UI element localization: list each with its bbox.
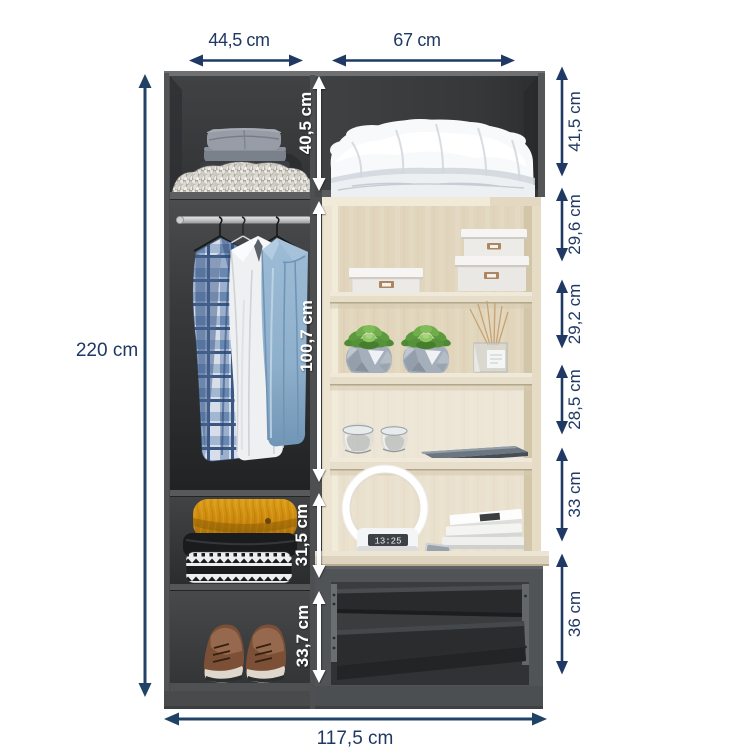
svg-text:44,5 cm: 44,5 cm (208, 30, 269, 50)
svg-text:33 cm: 33 cm (565, 471, 584, 517)
svg-text:41,5 cm: 41,5 cm (565, 91, 584, 151)
svg-text:29,2 cm: 29,2 cm (565, 284, 584, 344)
svg-text:28,5 cm: 28,5 cm (565, 369, 584, 429)
svg-text:40,5 cm: 40,5 cm (296, 92, 315, 154)
svg-text:13:25: 13:25 (374, 537, 401, 547)
svg-text:31,5 cm: 31,5 cm (292, 504, 311, 566)
svg-text:117,5 cm: 117,5 cm (317, 728, 394, 749)
svg-text:67 cm: 67 cm (393, 30, 441, 50)
svg-text:36 cm: 36 cm (565, 591, 584, 637)
svg-text:33,7 cm: 33,7 cm (293, 605, 312, 667)
svg-text:100,7 cm: 100,7 cm (297, 300, 316, 372)
svg-text:29,6 cm: 29,6 cm (565, 194, 584, 254)
svg-text:220 cm: 220 cm (76, 340, 138, 361)
